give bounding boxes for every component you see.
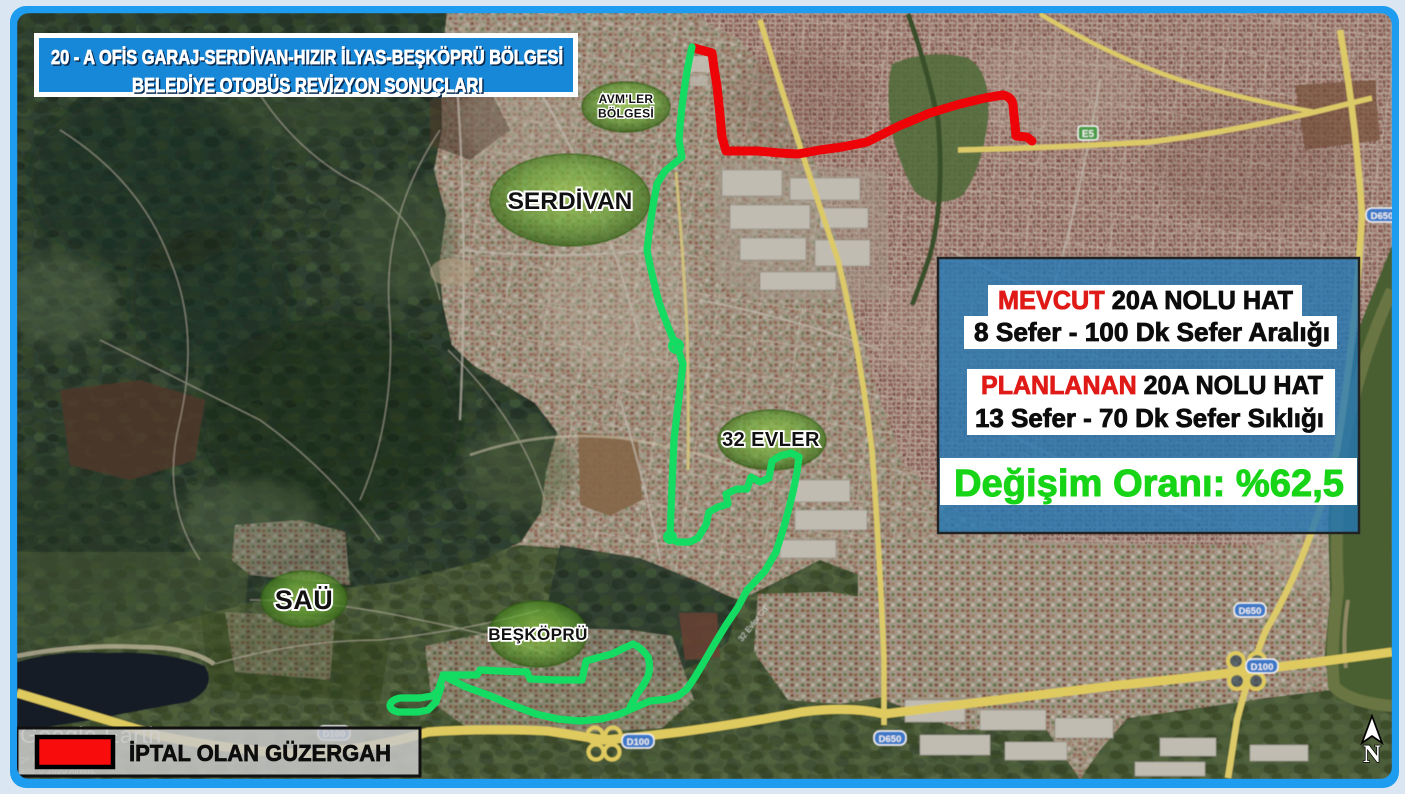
svg-text:13 Sefer - 70 Dk Sefer Sıklığı: 13 Sefer - 70 Dk Sefer Sıklığı [975,403,1324,433]
svg-text:AVM'LER: AVM'LER [599,92,654,106]
svg-text:BEŞKÖPRÜ: BEŞKÖPRÜ [488,625,588,644]
svg-text:20 - A OFİS GARAJ-SERDİVAN-HIZ: 20 - A OFİS GARAJ-SERDİVAN-HIZIR İLYAS-B… [51,46,563,69]
svg-text:MEVCUT 20A NOLU HAT: MEVCUT 20A NOLU HAT [998,285,1293,315]
svg-text:PLANLANAN 20A NOLU HAT: PLANLANAN 20A NOLU HAT [981,370,1323,400]
svg-text:BÖLGESİ: BÖLGESİ [598,106,654,121]
svg-text:BELEDİYE OTOBÜS REVİZYON SONUÇ: BELEDİYE OTOBÜS REVİZYON SONUÇLARI [132,74,483,97]
svg-text:N: N [1363,741,1381,768]
svg-text:8 Sefer - 100 Dk Sefer Aralığı: 8 Sefer - 100 Dk Sefer Aralığı [974,317,1330,347]
svg-text:Değişim Oranı: %62,5: Değişim Oranı: %62,5 [954,463,1344,505]
svg-text:32 EVLER: 32 EVLER [722,429,820,451]
svg-text:SERDİVAN: SERDİVAN [508,188,633,215]
svg-text:İPTAL OLAN GÜZERGAH: İPTAL OLAN GÜZERGAH [129,740,391,766]
svg-text:SAÜ: SAÜ [275,585,334,615]
